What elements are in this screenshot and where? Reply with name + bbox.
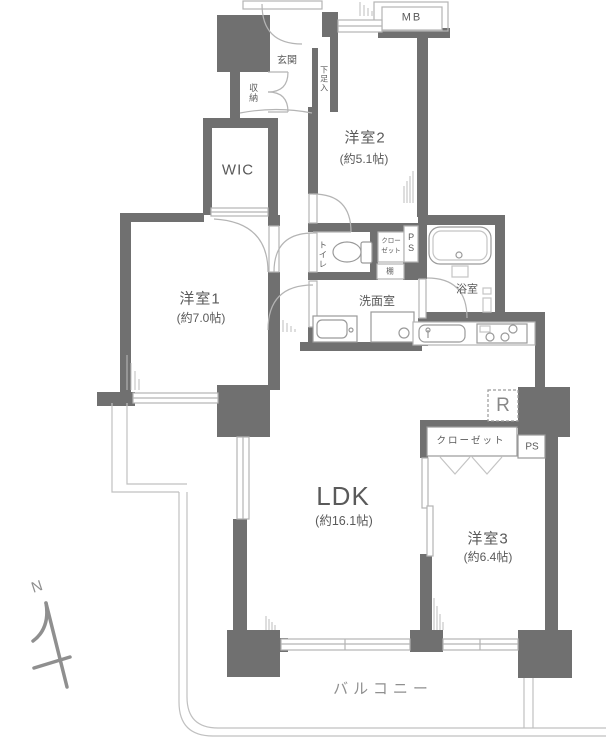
label-closet-upper-1: クロー — [381, 237, 401, 244]
bedroom1-door-arc — [214, 219, 268, 272]
label-bedroom2-size: (約5.1帖) — [340, 153, 389, 167]
label-closet-upper-2: ゼット — [381, 247, 401, 254]
label-toilet: トイレ — [317, 241, 327, 270]
washbasin-icon — [313, 316, 357, 342]
label-closet-lower: クローゼット — [436, 437, 505, 448]
storage-door-arc — [268, 72, 288, 92]
north-arrow-icon — [33, 603, 70, 687]
label-tana: 棚 — [386, 268, 394, 277]
closet-lower-box — [427, 427, 517, 474]
label-bedroom3: 洋室3 — [467, 530, 508, 547]
label-bedroom2: 洋室2 — [344, 129, 385, 146]
label-bathroom: 浴室 — [456, 284, 478, 297]
washing-machine-icon — [371, 312, 414, 342]
label-ldk: LDK — [316, 482, 370, 512]
label-refrigerator: R — [496, 395, 510, 417]
label-getabako: 下足入 — [319, 66, 328, 93]
label-ps-upper: PS — [406, 232, 416, 254]
toilet-icon — [333, 242, 372, 263]
label-bedroom1-size: (約7.0帖) — [177, 312, 226, 326]
label-shuno: 収納 — [248, 83, 258, 103]
label-bedroom1: 洋室1 — [179, 290, 220, 307]
label-genkan: 玄関 — [277, 55, 297, 67]
label-ldk-size: (約16.1帖) — [315, 514, 373, 528]
floorplan: 玄関 収納 下足入 MB 洋室2 (約5.1帖) WIC 洋室1 (約7.0帖)… — [0, 0, 606, 749]
label-balcony: バルコニー — [333, 680, 433, 697]
label-mb: MB — [402, 12, 423, 25]
label-wic: WIC — [222, 161, 254, 178]
bathtub-icon — [429, 227, 491, 312]
kitchen-counter — [413, 322, 535, 345]
floorplan-drawing — [0, 0, 606, 749]
folding-door-icon — [440, 457, 502, 474]
kitchen-sink-icon — [419, 325, 465, 342]
toilet-door-arc — [274, 233, 313, 272]
label-washroom: 洗面室 — [359, 295, 395, 309]
label-ps-lower: PS — [525, 441, 538, 453]
label-bedroom3-size: (約6.4帖) — [464, 551, 513, 565]
stove-icon — [477, 324, 527, 343]
